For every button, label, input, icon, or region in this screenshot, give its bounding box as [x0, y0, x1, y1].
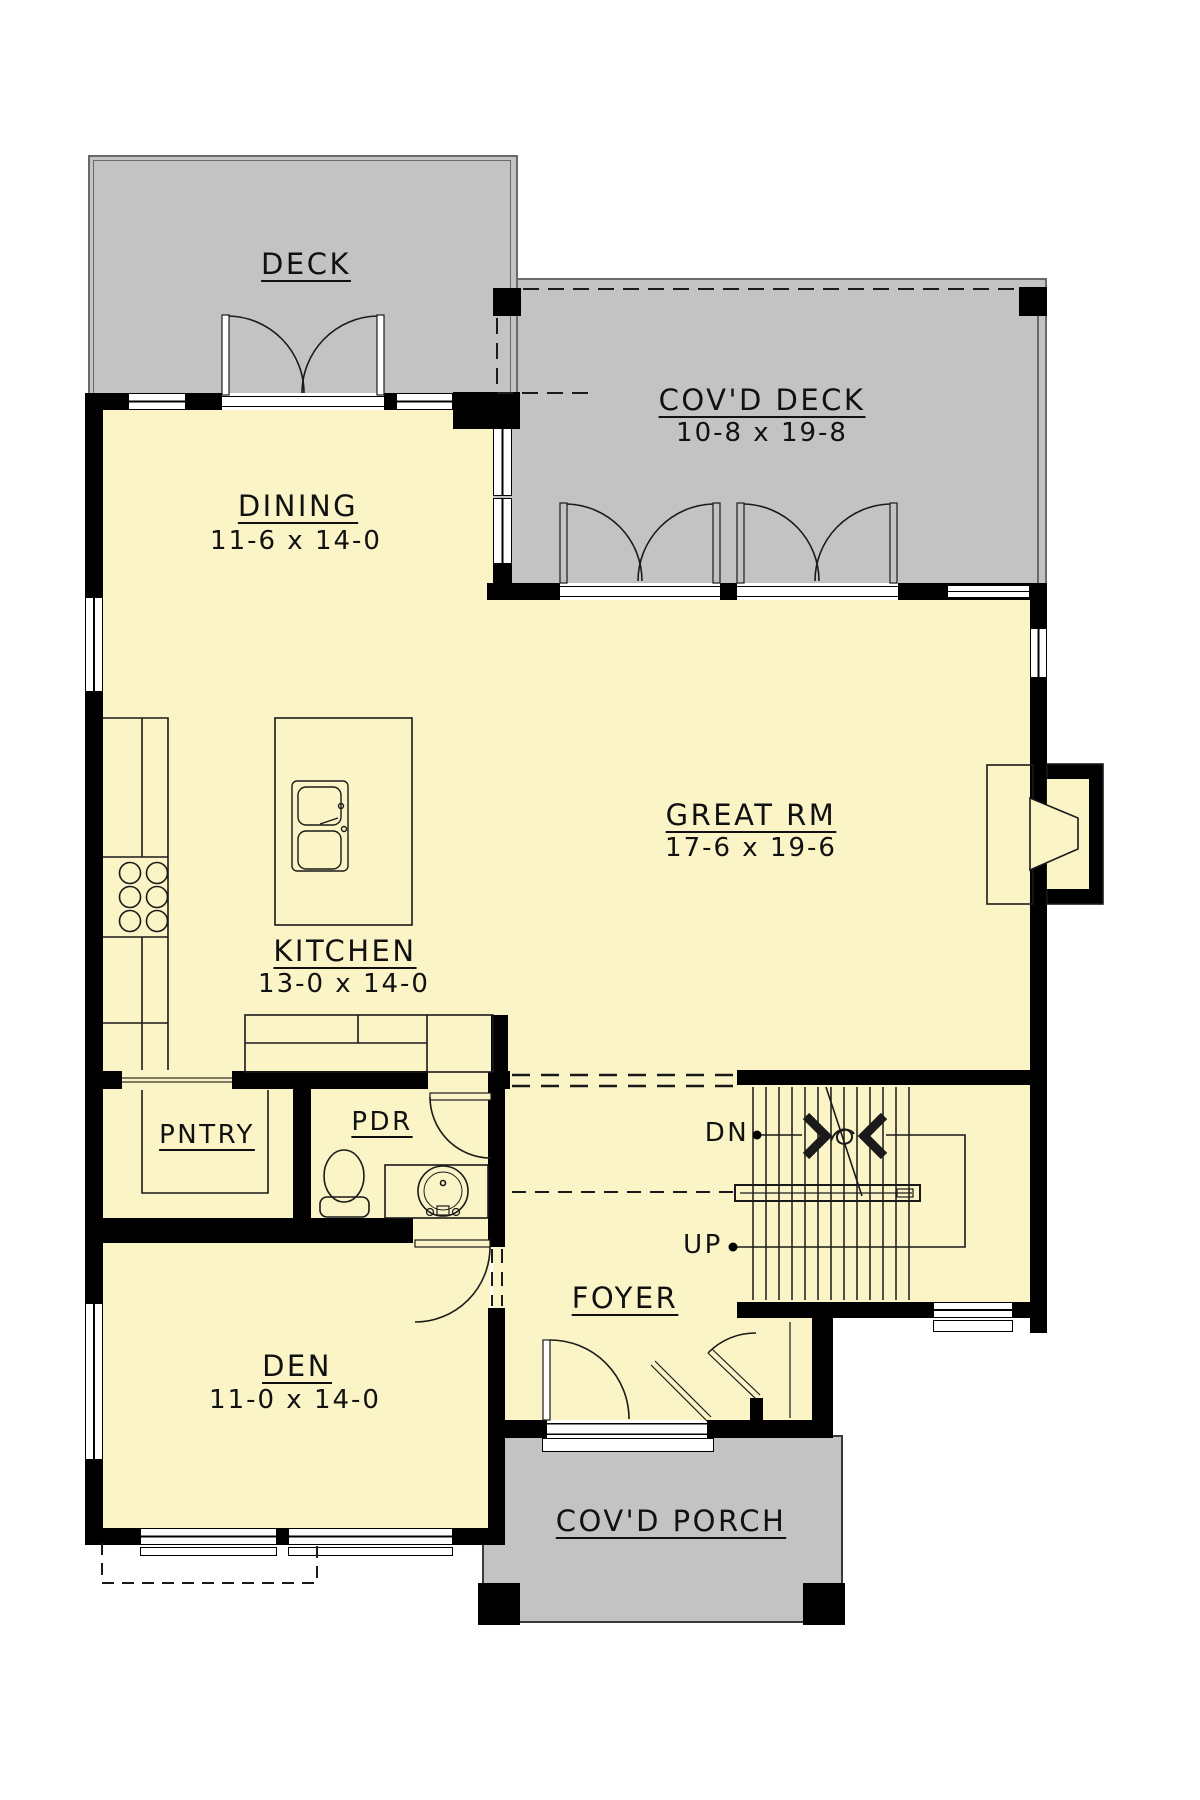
- kitchen-island: [275, 718, 412, 925]
- pdr-label: PDR: [351, 1107, 412, 1137]
- fireplace: [987, 764, 1103, 904]
- roofline-dashed: [497, 289, 1016, 393]
- staircase: [729, 1087, 966, 1300]
- pdr-sink: [385, 1165, 488, 1218]
- den-dims: 11-0 x 14-0: [209, 1385, 381, 1415]
- great-rm-label: GREAT RM: [666, 798, 837, 832]
- toilet-icon: [320, 1150, 369, 1217]
- kitchen-counter-left: [103, 718, 168, 1070]
- pdr-door: [430, 1093, 491, 1158]
- deck-french-doors: [222, 315, 384, 395]
- covd-porch-label: COV'D PORCH: [556, 1504, 787, 1538]
- stair-guardrail: [737, 1135, 965, 1247]
- dining-dims: 11-6 x 14-0: [210, 526, 382, 556]
- kitchen-dims: 13-0 x 14-0: [258, 969, 430, 999]
- floor-plan: DECK COV'D DECK 10-8 x 19-8 DINING 11-6 …: [0, 0, 1200, 1800]
- cooktop-icon: [120, 863, 168, 932]
- den-label: DEN: [262, 1349, 332, 1383]
- kitchen-counter-south: [245, 1015, 493, 1072]
- stair-dn-label: DN: [705, 1118, 749, 1148]
- stair-break-chevron-right: [806, 1116, 826, 1156]
- covd-deck-label: COV'D DECK: [659, 383, 866, 417]
- den-stoop-dashed: [102, 1543, 317, 1583]
- covd-deck-french-doors: [560, 503, 897, 583]
- pntry-label: PNTRY: [159, 1120, 255, 1150]
- foyer-label: FOYER: [572, 1281, 679, 1315]
- dining-label: DINING: [238, 489, 358, 523]
- hall-opening-dashed: [512, 1075, 737, 1086]
- great-rm-dims: 17-6 x 19-6: [665, 833, 837, 863]
- covd-deck-dims: 10-8 x 19-8: [676, 418, 848, 448]
- stair-up-label: UP: [683, 1230, 723, 1260]
- deck-label: DECK: [261, 247, 351, 281]
- stair-break-chevron-left: [864, 1116, 884, 1156]
- kitchen-label: KITCHEN: [273, 934, 416, 968]
- front-door: [543, 1340, 711, 1421]
- kitchen-sink-icon: [292, 781, 348, 871]
- foyer-closet-door: [708, 1322, 790, 1418]
- den-door: [415, 1240, 490, 1322]
